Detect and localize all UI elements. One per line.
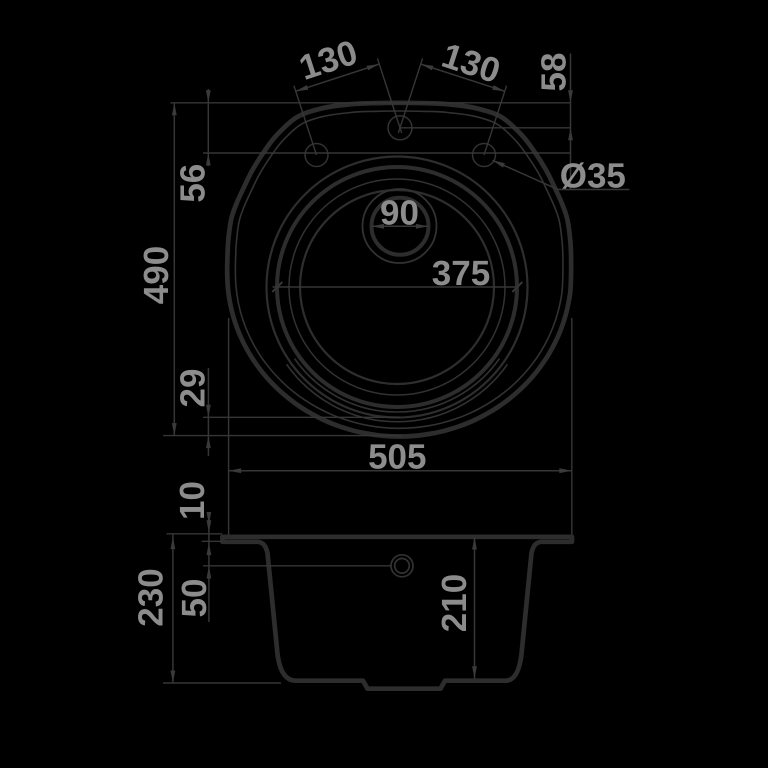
svg-text:90: 90 xyxy=(380,194,419,233)
svg-text:130: 130 xyxy=(295,33,363,88)
svg-text:Ø35: Ø35 xyxy=(560,157,626,196)
svg-text:505: 505 xyxy=(368,438,426,477)
svg-text:56: 56 xyxy=(173,164,212,203)
svg-text:58: 58 xyxy=(535,53,574,92)
svg-text:230: 230 xyxy=(131,568,170,626)
svg-text:375: 375 xyxy=(432,254,490,293)
svg-text:210: 210 xyxy=(435,574,474,632)
svg-text:490: 490 xyxy=(137,246,176,304)
svg-text:29: 29 xyxy=(174,369,213,408)
svg-text:50: 50 xyxy=(175,579,214,618)
svg-text:130: 130 xyxy=(437,36,505,91)
svg-text:10: 10 xyxy=(173,481,212,520)
